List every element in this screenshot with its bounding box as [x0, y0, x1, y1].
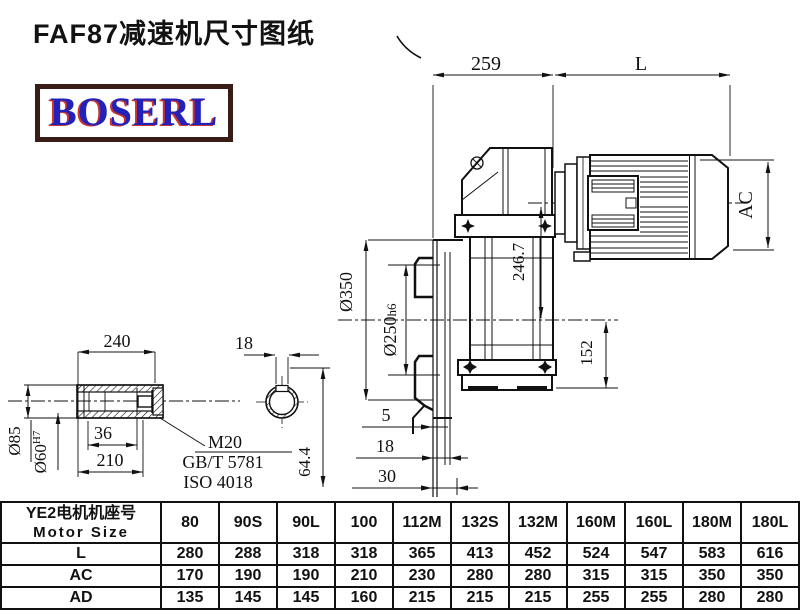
row-label-AC: AC [1, 565, 161, 587]
standard-iso-label: ISO 4018 [183, 472, 253, 492]
column-header-180L: 180L [741, 502, 799, 543]
dim-L: L [555, 53, 730, 156]
cell-AC-160L: 315 [625, 565, 683, 587]
dim-18-bottom-label: 18 [376, 436, 394, 456]
cell-L-90L: 318 [277, 543, 335, 565]
dim-60h7-label: Ø60H7 [31, 430, 50, 473]
column-header-112M: 112M [393, 502, 451, 543]
cell-L-160M: 524 [567, 543, 625, 565]
dim-5-label: 5 [382, 405, 391, 425]
cell-AD-80: 135 [161, 587, 219, 609]
cell-AD-132M: 215 [509, 587, 567, 609]
column-header-160M: 160M [567, 502, 625, 543]
page: FAF87减速机尺寸图纸 BOSERL [0, 0, 800, 614]
column-header-90S: 90S [219, 502, 277, 543]
cell-AD-132S: 215 [451, 587, 509, 609]
cell-AD-160L: 255 [625, 587, 683, 609]
cell-AC-80: 170 [161, 565, 219, 587]
table-row-AC: AC170190190210230280280315315350350 [1, 565, 799, 587]
dim-152-label: 152 [577, 340, 596, 366]
column-header-80: 80 [161, 502, 219, 543]
table-header-en: Motor Size [2, 523, 160, 542]
cell-AC-112M: 230 [393, 565, 451, 587]
dim-18-bottom: 18 [356, 436, 468, 461]
cell-L-90S: 288 [219, 543, 277, 565]
cell-AC-100: 210 [335, 565, 393, 587]
column-header-132S: 132S [451, 502, 509, 543]
table-header-cn: YE2电机机座号 [2, 504, 160, 523]
motor-spec-table: YE2电机机座号 Motor Size 8090S90L100112M132S1… [0, 501, 800, 610]
dim-30-label: 30 [378, 466, 396, 486]
cell-AC-160M: 315 [567, 565, 625, 587]
dim-AC-label: AC [735, 191, 757, 219]
cell-L-100: 318 [335, 543, 393, 565]
gearbox-main-view [413, 148, 556, 497]
cell-AD-90L: 145 [277, 587, 335, 609]
table-row-L: L280288318318365413452524547583616 [1, 543, 799, 565]
dim-36-label: 36 [94, 423, 112, 443]
table-row-AD: AD135145145160215215215255255280280 [1, 587, 799, 609]
dim-152: 152 [556, 322, 618, 388]
row-label-AD: AD [1, 587, 161, 609]
dim-30: 30 [352, 466, 478, 491]
dimension-drawing: 259 L AC 246.7 Ø350 [0, 0, 800, 502]
standard-gbt-label: GB/T 5781 [182, 452, 263, 472]
cell-AD-180M: 280 [683, 587, 741, 609]
cell-L-132S: 413 [451, 543, 509, 565]
cell-AD-100: 160 [335, 587, 393, 609]
column-header-100: 100 [335, 502, 393, 543]
thread-callout: M20 [208, 432, 242, 452]
cell-AD-180L: 280 [741, 587, 799, 609]
cell-L-180L: 616 [741, 543, 799, 565]
cell-AC-180M: 350 [683, 565, 741, 587]
cell-AC-90L: 190 [277, 565, 335, 587]
dim-259: 259 [433, 53, 553, 238]
dim-250h6-label: Ø250h6 [380, 303, 400, 357]
dim-246-7-label: 246.7 [509, 242, 528, 281]
dim-18-keyway-label: 18 [235, 333, 253, 353]
table-header-motor-size: YE2电机机座号 Motor Size [1, 502, 161, 543]
dim-210-label: 210 [97, 450, 124, 470]
dim-85-label: Ø85 [5, 426, 24, 455]
cell-AD-112M: 215 [393, 587, 451, 609]
column-header-180M: 180M [683, 502, 741, 543]
leader-arc [397, 36, 421, 58]
dim-259-label: 259 [471, 53, 501, 75]
dim-240-label: 240 [104, 331, 131, 351]
cell-L-80: 280 [161, 543, 219, 565]
cell-AD-90S: 145 [219, 587, 277, 609]
row-label-L: L [1, 543, 161, 565]
dim-350-label: Ø350 [336, 272, 356, 312]
column-header-132M: 132M [509, 502, 567, 543]
column-header-160L: 160L [625, 502, 683, 543]
cell-AC-90S: 190 [219, 565, 277, 587]
dim-L-label: L [635, 53, 647, 75]
cell-L-112M: 365 [393, 543, 451, 565]
cell-AC-132S: 280 [451, 565, 509, 587]
table-header-row: YE2电机机座号 Motor Size 8090S90L100112M132S1… [1, 502, 799, 543]
cell-L-160L: 547 [625, 543, 683, 565]
dim-64-4-label: 64.4 [295, 447, 314, 477]
motor-side-view [528, 155, 748, 261]
column-header-90L: 90L [277, 502, 335, 543]
cell-AC-180L: 350 [741, 565, 799, 587]
cell-L-132M: 452 [509, 543, 567, 565]
cell-AC-132M: 280 [509, 565, 567, 587]
cell-L-180M: 583 [683, 543, 741, 565]
fan-cover [690, 155, 728, 259]
cell-AD-160M: 255 [567, 587, 625, 609]
